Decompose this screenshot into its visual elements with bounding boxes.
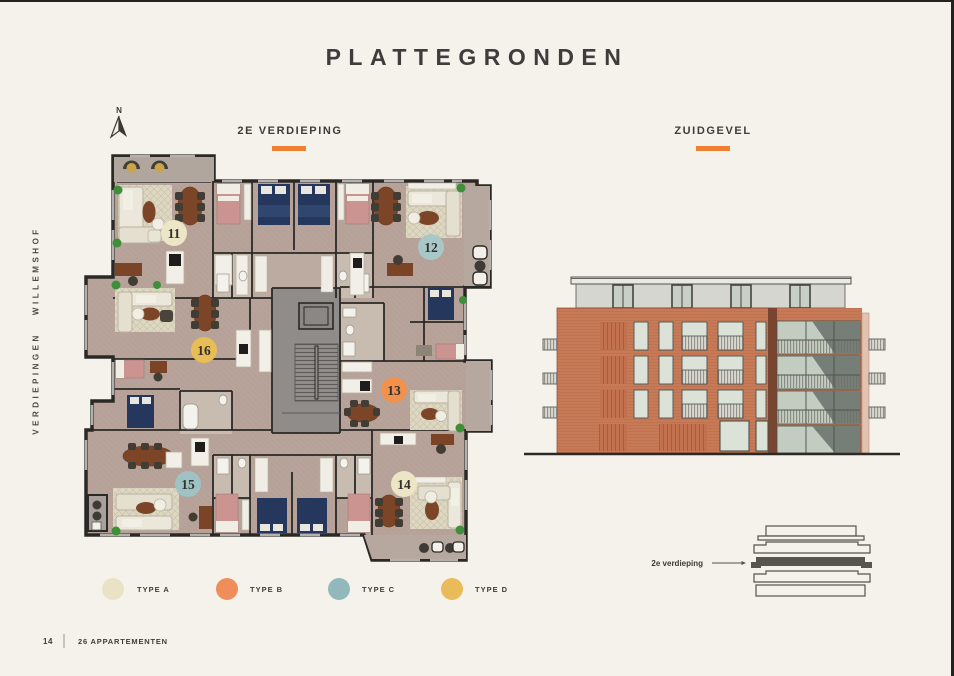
svg-text:TYPE A: TYPE A [137, 585, 170, 594]
svg-text:2e verdieping: 2e verdieping [651, 559, 703, 568]
svg-text:26 APPARTEMENTEN: 26 APPARTEMENTEN [78, 637, 168, 646]
svg-text:16: 16 [197, 343, 211, 358]
svg-text:15: 15 [181, 477, 195, 492]
svg-text:TYPE C: TYPE C [362, 585, 395, 594]
svg-text:14: 14 [43, 637, 53, 646]
svg-text:TYPE B: TYPE B [250, 585, 283, 594]
svg-text:13: 13 [387, 383, 401, 398]
svg-text:12: 12 [424, 240, 438, 255]
svg-text:14: 14 [397, 477, 411, 492]
svg-text:N: N [116, 106, 122, 115]
svg-text:11: 11 [168, 226, 181, 241]
svg-text:TYPE D: TYPE D [475, 585, 508, 594]
